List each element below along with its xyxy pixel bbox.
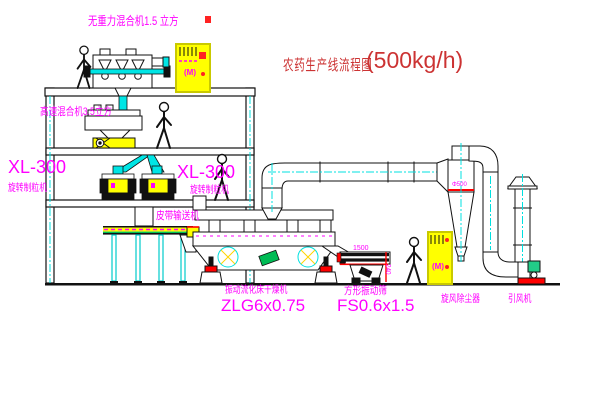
label-dryer-name: 振动流化床干燥机: [225, 286, 287, 296]
induced-draft-fan: [518, 261, 545, 284]
person-second-floor: [157, 103, 171, 149]
drop-duct: [135, 207, 153, 226]
label-belt-conveyor: 皮带输送机: [156, 211, 199, 222]
red-stamp: [205, 16, 211, 23]
diagram-title-capacity: (500kg/h): [366, 47, 463, 74]
dim-cyclone-dia: Φ500: [452, 182, 467, 188]
label-fan: 引风机: [508, 295, 531, 305]
label-granulator-name-right: 旋转制粒机: [190, 186, 229, 196]
person-ground: [407, 238, 421, 284]
label-granulator-model-right: XL-300: [177, 163, 235, 181]
label-granulator-model-left: XL-300: [8, 158, 66, 176]
diagram-title: 农药生产线流程图: [283, 54, 373, 75]
square-vibrating-screen: [337, 252, 390, 283]
belt-conveyor: [103, 226, 196, 284]
gravity-free-mixer: [84, 49, 170, 112]
label-cyclone: 旋风除尘器: [441, 295, 480, 305]
ground-line: [45, 283, 560, 286]
dim-screen-240: 240: [384, 264, 391, 275]
label-high-speed-mixer: 高速混合机3.5立方: [40, 107, 112, 118]
label-granulator-name-left: 旋转制粒机: [8, 184, 47, 194]
rotary-granulator-left: [100, 166, 136, 200]
control-cabinet-ground: [428, 232, 452, 284]
label-gravity-mixer: 无重力混合机1.5 立方: [88, 15, 179, 27]
label-dryer-model: ZLG6x0.75: [221, 297, 305, 314]
cabinet-motor-symbol-ground: (M): [432, 263, 444, 271]
label-screen-model: FS0.6x1.5: [337, 297, 415, 314]
cad-flow-diagram: 农药生产线流程图 (500kg/h) 无重力混合机1.5 立方 高速混合机3.5…: [0, 0, 600, 403]
dim-screen-1500: 1500: [353, 245, 369, 252]
cabinet-motor-symbol-top: (M): [184, 69, 196, 77]
rotary-granulator-right: [140, 166, 176, 200]
